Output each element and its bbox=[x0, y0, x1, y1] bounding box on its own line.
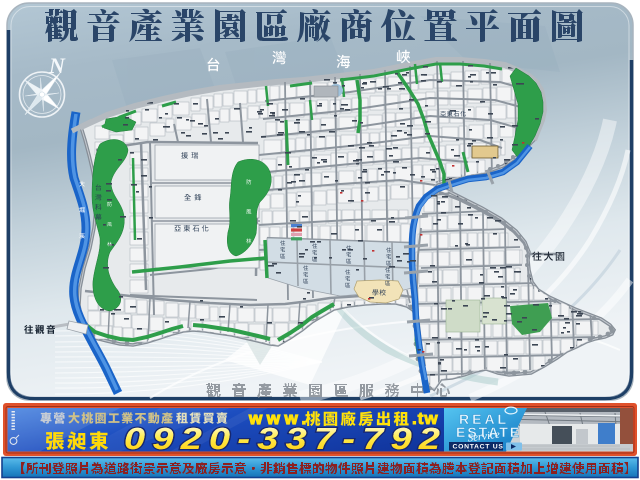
svg-text:CONTACT US: CONTACT US bbox=[453, 444, 504, 451]
svg-text:0920-337-792: 0920-337-792 bbox=[124, 422, 447, 456]
svg-text:N: N bbox=[48, 53, 66, 78]
